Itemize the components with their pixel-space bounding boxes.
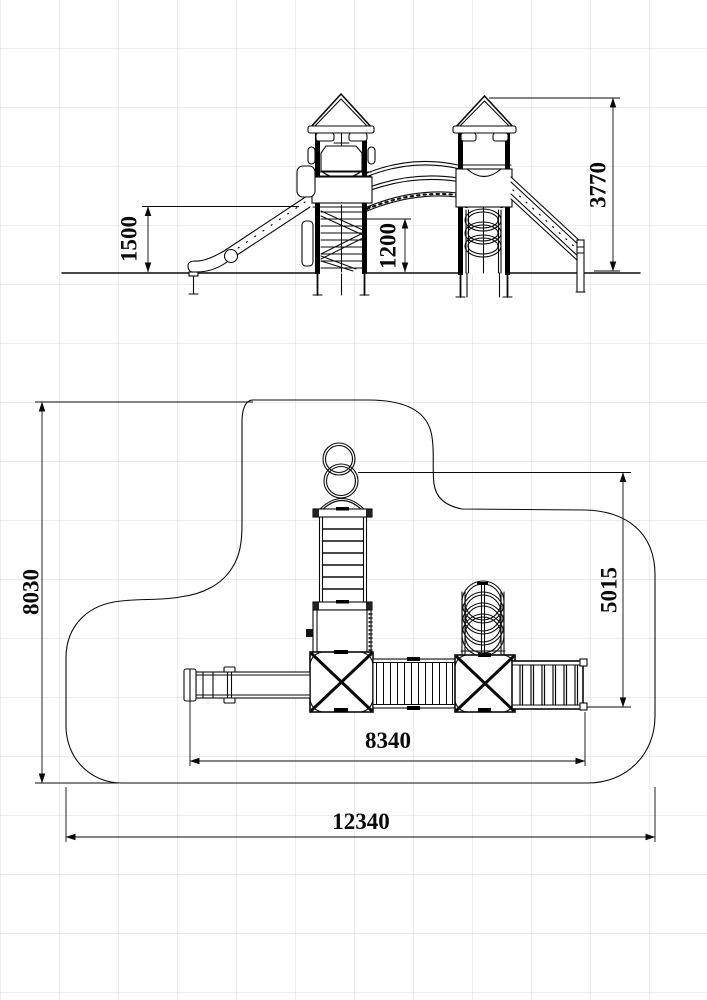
bridge-plan	[373, 657, 455, 710]
slide-entry	[297, 166, 315, 197]
slide-plan	[184, 667, 310, 703]
dimension-text-12340: 12340	[332, 809, 390, 834]
tower-right-deck-fascia	[456, 169, 512, 207]
tower-left-upper-deck-plan	[306, 610, 373, 654]
drawing-sheet: 1500 1200 3770	[0, 0, 707, 1000]
tower-left-platform-plan	[310, 650, 373, 712]
dimension-text-1200: 1200	[375, 223, 400, 269]
tower-right-platform-plan	[455, 653, 515, 712]
slide-side-board	[302, 221, 313, 266]
stairs-plan	[512, 659, 587, 710]
dimension-text-8030: 8030	[18, 569, 43, 615]
handle-right	[368, 147, 375, 164]
dimension-text-8340: 8340	[365, 728, 411, 753]
dimension-text-1500: 1500	[116, 216, 141, 262]
stairs-end-post	[577, 240, 584, 292]
tower-left-panel	[321, 146, 362, 171]
loop-climber-elevation	[465, 207, 502, 273]
tower-right-elevation	[453, 96, 516, 297]
drawing-canvas: 1500 1200 3770	[0, 0, 707, 1000]
dimension-text-5015: 5015	[596, 567, 621, 613]
slide-wheel	[225, 250, 238, 263]
tower-left-deck-fascia	[312, 177, 372, 203]
dimension-text-3770: 3770	[585, 162, 610, 208]
handle-left	[308, 147, 315, 164]
